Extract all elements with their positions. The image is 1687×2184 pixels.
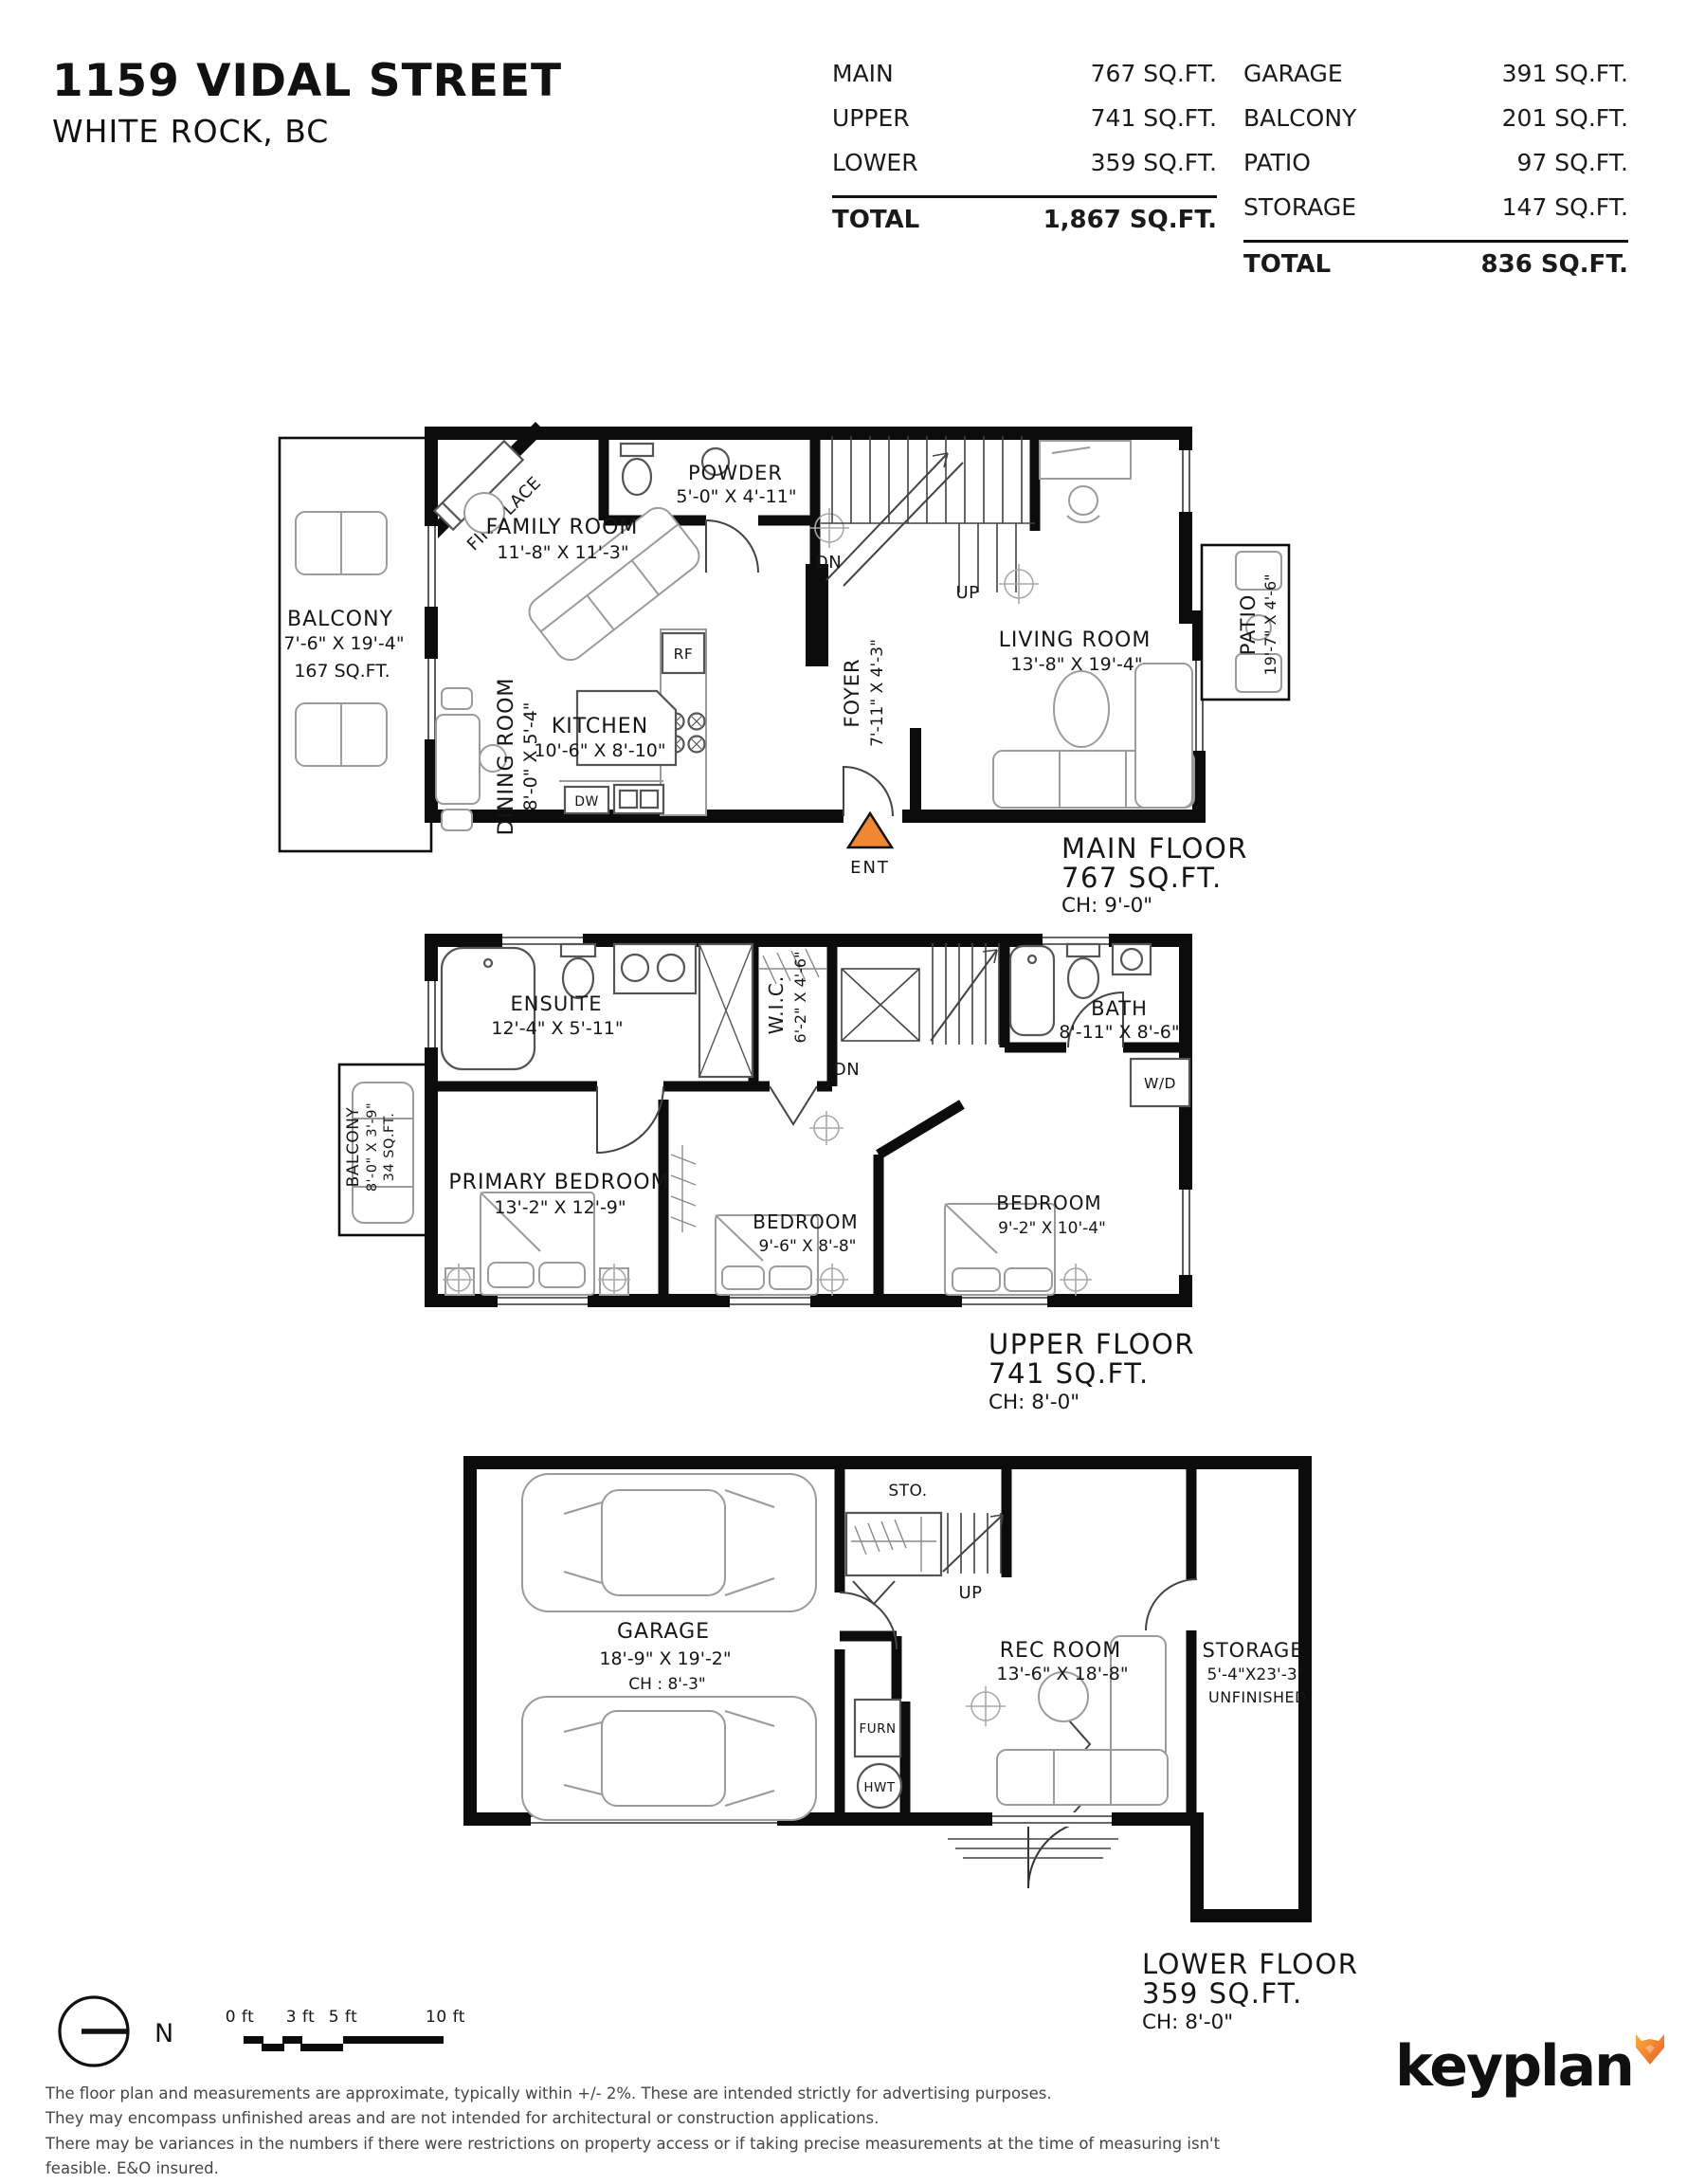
bedroom3-bed <box>945 1204 1055 1295</box>
main-floor-area: 767 SQ.FT. <box>1061 862 1223 894</box>
window <box>730 1294 810 1307</box>
dining-label: DINING ROOM <box>495 678 518 836</box>
dw-label: DW <box>574 794 599 810</box>
ensuite-dims: 12'-4" X 5'-11" <box>491 1018 623 1039</box>
bedroom3-dims: 9'-2" X 10'-4" <box>998 1219 1106 1238</box>
balcony-dims: 7'-6" X 19'-4" <box>283 633 404 654</box>
sto-closet <box>846 1513 941 1575</box>
rec-room-label: REC ROOM <box>1000 1639 1121 1663</box>
patio-label: PATIO <box>1237 594 1260 656</box>
ceiling-light-icon <box>966 1686 1006 1726</box>
entry-door <box>843 767 893 816</box>
upper-floor-plan: ENSUITE 12'-4" X 5'-11" W.I.C. 6'-2" X 4… <box>339 934 1195 1414</box>
wall-chunk <box>806 564 828 666</box>
ceiling-light-icon <box>809 1111 843 1145</box>
scale-3ft: 3 ft <box>286 2008 316 2027</box>
balcony-area: 167 SQ.FT. <box>294 661 390 682</box>
powder-door <box>706 520 758 573</box>
bedroom2-dims: 9'-6" X 8'-8" <box>759 1237 857 1256</box>
living-room-dims: 13'-8" X 19'-4" <box>1010 654 1142 675</box>
bedroom2-label: BEDROOM <box>753 1210 858 1233</box>
foyer-dims: 7'-11" X 4'-3" <box>868 639 887 747</box>
lower-floor-area: 359 SQ.FT. <box>1142 1977 1303 2010</box>
rec-room-dims: 13'-6" X 18'-8" <box>996 1664 1128 1684</box>
lower-floor-plan: STO. UP GARAGE 18'-9" X 19'-2" CH : 8'-3… <box>470 1463 1358 2034</box>
bath-toilet <box>1067 944 1099 998</box>
rf-label: RF <box>674 646 694 663</box>
coffee-table <box>1054 671 1109 747</box>
closet-hangers <box>671 1145 696 1232</box>
upper-stairs <box>842 943 999 1045</box>
bath-label: BATH <box>1091 997 1148 1020</box>
window <box>1179 1190 1192 1275</box>
patio-dims: 19'-7" X 4'-6" <box>1261 573 1279 675</box>
foyer-label: FOYER <box>841 658 863 727</box>
lower-stairs <box>943 1513 1003 1574</box>
upper-floor-title: UPPER FLOOR <box>989 1328 1195 1360</box>
ceiling-light-icon <box>1060 1264 1092 1296</box>
shower <box>699 944 753 1077</box>
ent-label: ENT <box>850 858 890 878</box>
main-stairs <box>821 436 1035 592</box>
scale-0ft: 0 ft <box>226 2008 255 2027</box>
entrance-arrow-icon <box>848 813 892 847</box>
dn-label: DN <box>833 1060 860 1080</box>
car <box>522 1474 816 1611</box>
logo-text: keyplan <box>1395 2038 1633 2095</box>
living-room-label: LIVING ROOM <box>999 628 1152 652</box>
window <box>992 1812 1112 1827</box>
family-room-label: FAMILY ROOM <box>486 516 639 539</box>
garage-dims: 18'-9" X 19'-2" <box>599 1648 731 1669</box>
primary-bedroom-dims: 13'-2" X 12'-9" <box>494 1197 626 1218</box>
main-floor-ceiling: CH: 9'-0" <box>1061 894 1152 918</box>
lower-floor-title: LOWER FLOOR <box>1142 1948 1358 1980</box>
up-label: UP <box>955 583 979 603</box>
family-room-dims: 11'-8" X 11'-3" <box>497 542 628 563</box>
scale-10ft: 10 ft <box>426 2008 465 2027</box>
balcony-label: BALCONY <box>287 608 393 631</box>
storage-dims: 5'-4"X23'-3" <box>1207 1665 1305 1684</box>
balcony-area: 34 SQ.FT. <box>382 1113 397 1182</box>
main-floor-plan: FIREPLACE <box>280 427 1289 918</box>
disclaimer-line1: The floor plan and measurements are appr… <box>45 2082 1278 2106</box>
upper-floor-ceiling: CH: 8'-0" <box>989 1391 1079 1414</box>
bedroom3-label: BEDROOM <box>996 1192 1101 1214</box>
porch-steps <box>948 1839 1118 1858</box>
sto-label: STO. <box>888 1482 927 1501</box>
disclaimer-line3: There may be variances in the numbers if… <box>45 2132 1278 2182</box>
bath-tub <box>1010 946 1054 1035</box>
window <box>425 981 438 1047</box>
window <box>962 1294 1047 1307</box>
main-floor-title: MAIN FLOOR <box>1061 832 1248 864</box>
floorplan-drawing: FIREPLACE <box>0 0 1687 2184</box>
ceiling-light-icon <box>816 1264 848 1296</box>
balcony-dims: 8'-0" X 3'-9" <box>365 1102 380 1192</box>
storage-label: STORAGE <box>1203 1639 1304 1662</box>
hwt-label: HWT <box>863 1780 895 1795</box>
furn-label: FURN <box>859 1721 896 1737</box>
up-label: UP <box>958 1583 982 1603</box>
lower-floor-ceiling: CH: 8'-0" <box>1142 2011 1233 2034</box>
window <box>1179 450 1192 512</box>
disclaimer-line2: They may encompass unfinished areas and … <box>45 2106 1278 2131</box>
powder-label: POWDER <box>688 462 783 484</box>
bath-dims: 8'-11" X 8'-6" <box>1059 1022 1179 1043</box>
window <box>498 1294 588 1307</box>
powder-toilet <box>621 444 653 495</box>
car <box>522 1697 816 1820</box>
bath-sink <box>1113 944 1151 974</box>
garage-ceiling: CH : 8'-3" <box>628 1675 705 1694</box>
storage-note: UNFINISHED <box>1208 1688 1307 1706</box>
wic-dims: 6'-2" X 4'-6" <box>791 952 809 1044</box>
sto-door <box>853 1581 895 1604</box>
wic-label: W.I.C. <box>765 975 788 1034</box>
wd-label: W/D <box>1144 1075 1176 1092</box>
primary-bedroom-label: PRIMARY BEDROOM <box>448 1171 669 1194</box>
floorplan-page: 1159 VIDAL STREET WHITE ROCK, BC MAIN 76… <box>0 0 1687 2184</box>
kitchen-dims: 10'-6" X 8'-10" <box>534 740 665 761</box>
dn-label: DN <box>815 553 842 573</box>
wic-door <box>770 1086 817 1124</box>
keyplan-logo: keyplan <box>1395 2038 1664 2095</box>
disclaimer: The floor plan and measurements are appr… <box>45 2082 1278 2182</box>
balcony-label: BALCONY <box>344 1107 363 1188</box>
primary-door <box>597 1086 663 1153</box>
exterior-door <box>1028 1819 1097 1888</box>
kitchen-label: KITCHEN <box>552 715 648 738</box>
window <box>425 526 438 607</box>
ensuite-toilet <box>561 944 595 998</box>
compass: N <box>60 1997 173 2066</box>
storage-door <box>1146 1579 1197 1630</box>
fox-icon <box>1636 2034 1664 2065</box>
north-label: N <box>154 2019 173 2048</box>
ensuite-vanity <box>614 944 696 993</box>
garage-label: GARAGE <box>617 1620 710 1644</box>
upper-floor-area: 741 SQ.FT. <box>989 1357 1150 1390</box>
scale-5ft: 5 ft <box>329 2008 358 2027</box>
ensuite-label: ENSUITE <box>511 992 603 1015</box>
powder-dims: 5'-0" X 4'-11" <box>676 486 796 507</box>
desk <box>1040 441 1131 522</box>
ceiling-light-icon <box>999 564 1039 604</box>
foyer-wall-stub <box>910 728 921 816</box>
scale-bar: 0 ft 3 ft 5 ft 10 ft <box>226 2008 465 2051</box>
